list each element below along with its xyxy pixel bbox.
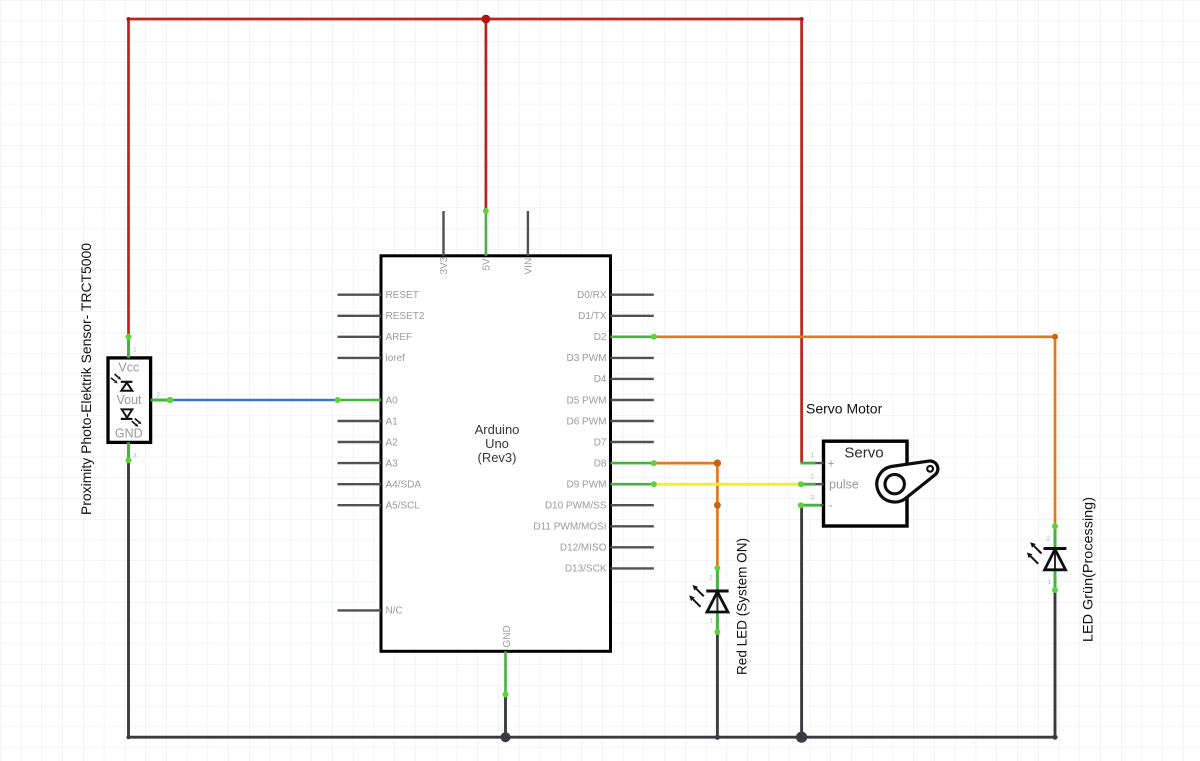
svg-text:+: + <box>828 457 835 471</box>
svg-text:2: 2 <box>156 392 160 399</box>
svg-text:D5 PWM: D5 PWM <box>567 395 607 406</box>
svg-text:(Rev3): (Rev3) <box>477 450 516 465</box>
svg-text:GND: GND <box>502 625 513 647</box>
svg-text:D0/RX: D0/RX <box>577 290 607 301</box>
svg-text:1: 1 <box>1048 579 1052 586</box>
svg-text:N/C: N/C <box>386 606 403 617</box>
svg-text:D7: D7 <box>594 437 607 448</box>
svg-text:D9 PWM: D9 PWM <box>567 480 607 491</box>
svg-text:RESET2: RESET2 <box>386 311 425 322</box>
svg-text:1: 1 <box>710 618 714 625</box>
svg-text:D3 PWM: D3 PWM <box>567 353 607 364</box>
svg-text:D10 PWM/SS: D10 PWM/SS <box>545 501 607 512</box>
svg-text:Red LED (System ON): Red LED (System ON) <box>734 538 750 675</box>
svg-text:ioref: ioref <box>386 353 406 364</box>
svg-text:3V3: 3V3 <box>439 256 450 274</box>
svg-text:D13/SCK: D13/SCK <box>565 564 607 575</box>
svg-text:Servo: Servo <box>844 445 883 462</box>
svg-text:VIN: VIN <box>524 258 535 275</box>
svg-text:Vout: Vout <box>116 393 142 407</box>
svg-text:D11 PWM/MOSI: D11 PWM/MOSI <box>533 522 606 533</box>
svg-text:D12/MISO: D12/MISO <box>560 543 607 554</box>
svg-text:1: 1 <box>133 347 137 354</box>
svg-text:1: 1 <box>811 452 815 459</box>
svg-text:2: 2 <box>1047 536 1051 543</box>
svg-text:2: 2 <box>709 575 713 582</box>
svg-text:D8: D8 <box>594 458 607 469</box>
svg-text:A1: A1 <box>386 416 399 427</box>
svg-text:3: 3 <box>811 495 815 502</box>
svg-text:A2: A2 <box>386 437 399 448</box>
svg-text:pulse: pulse <box>829 478 859 492</box>
svg-text:5V: 5V <box>482 258 493 271</box>
svg-text:AREF: AREF <box>386 332 413 343</box>
svg-text:-: - <box>829 498 833 512</box>
svg-text:RESET: RESET <box>386 290 419 301</box>
svg-text:LED Grün(Processing): LED Grün(Processing) <box>1080 497 1096 642</box>
svg-text:D2: D2 <box>594 332 607 343</box>
svg-text:A4/SDA: A4/SDA <box>386 480 422 491</box>
svg-text:3: 3 <box>133 453 137 460</box>
svg-text:D4: D4 <box>594 374 607 385</box>
svg-text:Vcc: Vcc <box>118 361 139 375</box>
svg-text:GND: GND <box>115 427 143 441</box>
svg-text:Proximity Photo-Elektrik Senso: Proximity Photo-Elektrik Sensor- TRCT500… <box>78 243 94 515</box>
svg-text:D1/TX: D1/TX <box>578 311 607 322</box>
svg-text:A0: A0 <box>386 395 399 406</box>
svg-text:Arduino: Arduino <box>475 422 520 437</box>
svg-text:Uno: Uno <box>485 436 509 451</box>
svg-text:Servo Motor: Servo Motor <box>806 401 883 417</box>
svg-text:A5/SCL: A5/SCL <box>386 501 421 512</box>
svg-text:2: 2 <box>811 473 815 480</box>
svg-text:A3: A3 <box>386 458 399 469</box>
svg-text:D6 PWM: D6 PWM <box>567 416 607 427</box>
